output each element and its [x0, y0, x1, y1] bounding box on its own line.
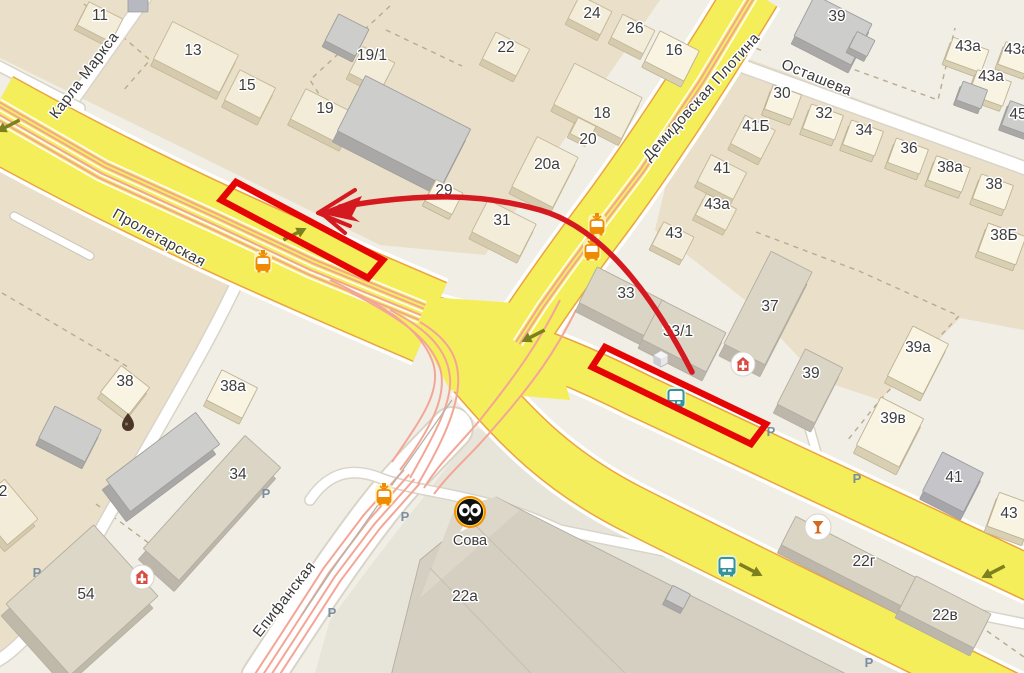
svg-text:2: 2: [0, 483, 7, 500]
svg-text:37: 37: [761, 298, 778, 315]
svg-text:19: 19: [316, 100, 333, 117]
svg-text:38: 38: [116, 373, 133, 390]
svg-text:20: 20: [579, 131, 597, 148]
svg-text:41: 41: [945, 469, 962, 486]
svg-text:26: 26: [626, 20, 643, 37]
svg-text:43а: 43а: [704, 196, 730, 213]
svg-text:11: 11: [92, 7, 108, 24]
svg-text:P: P: [328, 605, 337, 620]
svg-text:Сова: Сова: [453, 533, 488, 549]
svg-text:43а: 43а: [955, 38, 981, 55]
svg-text:41: 41: [713, 160, 730, 177]
svg-text:39а: 39а: [905, 339, 931, 356]
svg-text:34: 34: [855, 122, 873, 139]
svg-text:43: 43: [1000, 505, 1017, 522]
svg-text:19/1: 19/1: [357, 47, 387, 64]
svg-text:24: 24: [583, 5, 601, 22]
svg-text:34: 34: [229, 466, 247, 483]
svg-text:54: 54: [77, 586, 95, 603]
svg-text:P: P: [865, 655, 874, 670]
svg-text:38а: 38а: [937, 159, 963, 176]
svg-text:38: 38: [985, 176, 1002, 193]
svg-text:18: 18: [593, 105, 610, 122]
svg-text:43а: 43а: [978, 68, 1004, 85]
svg-text:22а: 22а: [452, 588, 478, 605]
svg-text:38а: 38а: [220, 378, 246, 395]
svg-text:33: 33: [617, 285, 634, 302]
svg-text:39: 39: [828, 8, 845, 25]
svg-text:P: P: [401, 509, 410, 524]
svg-text:22: 22: [497, 39, 514, 56]
svg-text:43а: 43а: [1004, 41, 1024, 58]
svg-text:15: 15: [238, 77, 255, 94]
svg-text:16: 16: [665, 42, 682, 59]
svg-text:39: 39: [802, 365, 819, 382]
svg-text:36: 36: [900, 140, 917, 157]
svg-text:P: P: [33, 565, 42, 580]
svg-text:22г: 22г: [853, 553, 876, 570]
svg-text:13: 13: [184, 42, 201, 59]
svg-text:30: 30: [773, 85, 791, 102]
svg-text:P: P: [853, 471, 862, 486]
svg-text:22в: 22в: [932, 607, 957, 624]
svg-text:32: 32: [815, 105, 832, 122]
svg-text:31: 31: [493, 212, 510, 229]
svg-text:43: 43: [665, 225, 682, 242]
svg-text:39в: 39в: [880, 410, 905, 427]
svg-text:45: 45: [1009, 106, 1024, 123]
svg-text:P: P: [262, 486, 271, 501]
svg-text:20a: 20a: [534, 156, 560, 173]
svg-text:41Б: 41Б: [742, 118, 769, 135]
svg-text:38Б: 38Б: [990, 227, 1017, 244]
